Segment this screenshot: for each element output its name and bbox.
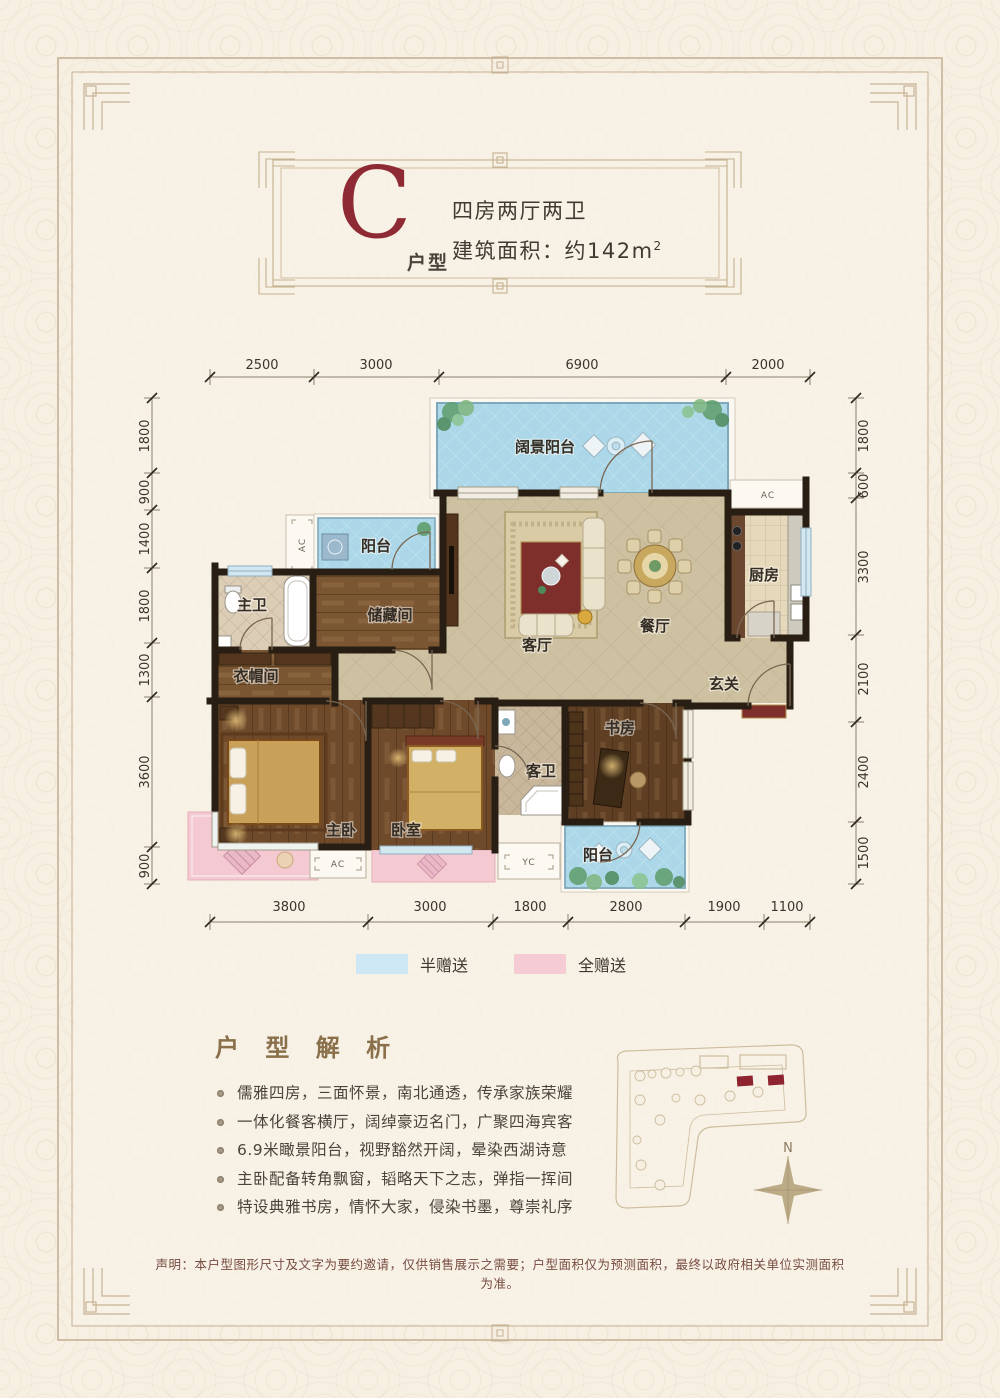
svg-text:900: 900 (138, 854, 153, 879)
room-kitchen: AC 厨房 (728, 480, 806, 638)
legend-label-half-gift: 半赠送 (420, 952, 468, 976)
svg-text:6900: 6900 (565, 358, 598, 373)
unit-analysis: 户 型 解 析 儒雅四房，三面怀景，南北通透，传承家族荣耀 一体化餐客横厅，阔绰… (215, 1028, 635, 1222)
living-sofa-set (505, 512, 605, 638)
svg-text:厨房: 厨房 (749, 566, 779, 584)
bedroom-bed (406, 736, 484, 830)
compass: N (754, 1141, 822, 1224)
analysis-bullet: 主卧配备转角飘窗，韬略天下之志，弹指一挥间 (215, 1165, 635, 1194)
site-highlighted-buildings (737, 1074, 785, 1086)
bookshelf (569, 712, 583, 806)
analysis-list: 儒雅四房，三面怀景，南北通透，传承家族荣耀 一体化餐客横厅，阔绰豪迈名门，广聚四… (215, 1079, 635, 1222)
room-bedroom: 卧室 (368, 700, 495, 850)
svg-text:3600: 3600 (138, 755, 153, 788)
room-balcony-bottom: 阳台 (561, 822, 689, 892)
analysis-heading: 户 型 解 析 (215, 1028, 635, 1063)
floor-lamp (578, 610, 592, 624)
floor-plan: 2500 3000 6900 2000 3800 3000 1800 2800 … (130, 340, 890, 944)
svg-text:3000: 3000 (413, 900, 446, 915)
analysis-bullet: 一体化餐客横厅，阔绰豪迈名门，广聚四海宾客 (215, 1108, 635, 1137)
svg-text:3300: 3300 (857, 550, 872, 583)
legend-item-full-gift: 全赠送 (514, 952, 626, 976)
svg-text:AC: AC (331, 860, 345, 870)
room-storage: 储藏间 (313, 572, 443, 650)
room-balcony-top: AC 阳台 (286, 514, 439, 575)
svg-text:1300: 1300 (138, 653, 153, 686)
unit-letter: C (337, 154, 412, 254)
svg-text:1800: 1800 (138, 419, 153, 452)
room-master-bedroom: 主卧 (215, 700, 368, 847)
legend-swatch-half-gift (356, 954, 408, 974)
area-superscript: 2 (654, 239, 663, 253)
svg-text:YC: YC (521, 858, 535, 868)
unit-area-line: 建筑面积：约142m2 (452, 229, 663, 269)
room-guest-bath: 客卫 (495, 703, 565, 815)
svg-text:AC: AC (761, 491, 775, 501)
washing-machine (322, 534, 348, 560)
ac-platform-bottom: AC (310, 848, 366, 878)
room-study: 书房 (565, 703, 688, 822)
analysis-bullet: 儒雅四房，三面怀景，南北通透，传承家族荣耀 (215, 1079, 635, 1108)
svg-text:900: 900 (138, 480, 153, 505)
svg-text:主卫: 主卫 (237, 596, 267, 614)
svg-text:阳台: 阳台 (361, 537, 391, 555)
svg-text:600: 600 (857, 474, 872, 499)
master-bed (222, 734, 326, 830)
svg-text:客厅: 客厅 (521, 636, 552, 654)
legend-label-full-gift: 全赠送 (578, 952, 626, 976)
title-block: C 户型 四房两厅两卫 建筑面积：约142m2 (255, 148, 745, 298)
svg-text:1500: 1500 (857, 836, 872, 869)
wardrobe (219, 653, 271, 665)
svg-text:衣帽间: 衣帽间 (233, 667, 278, 685)
svg-text:书房: 书房 (605, 719, 635, 737)
svg-text:卧室: 卧室 (391, 821, 421, 839)
pouf-glyph (277, 852, 293, 868)
svg-text:玄关: 玄关 (709, 675, 739, 693)
svg-text:2000: 2000 (751, 358, 784, 373)
svg-text:1800: 1800 (857, 419, 872, 452)
svg-text:1800: 1800 (513, 900, 546, 915)
svg-text:1100: 1100 (770, 900, 803, 915)
yc-platform-bottom: YC (498, 843, 560, 879)
svg-text:1400: 1400 (138, 522, 153, 555)
floorplan-poster: C 户型 四房两厅两卫 建筑面积：约142m2 (0, 0, 1000, 1398)
svg-text:2500: 2500 (245, 358, 278, 373)
svg-text:1900: 1900 (707, 900, 740, 915)
unit-specs: 四房两厅两卫 建筑面积：约142m2 (452, 194, 663, 269)
unit-letter-suffix: 户型 (407, 248, 449, 275)
svg-text:2800: 2800 (609, 900, 642, 915)
svg-text:客卫: 客卫 (525, 762, 556, 780)
site-plan: N (595, 1032, 865, 1232)
compass-north-label: N (783, 1141, 793, 1156)
unit-rooms-line: 四房两厅两卫 (452, 194, 663, 229)
analysis-bullet: 6.9米瞰景阳台，视野豁然开阔，晕染西湖诗意 (215, 1136, 635, 1165)
svg-text:主卧: 主卧 (326, 821, 356, 839)
analysis-bullet: 特设典雅书房，情怀大家，侵染书墨，尊崇礼序 (215, 1193, 635, 1222)
desk-chair (630, 772, 646, 788)
room-view-balcony: 阔景阳台 (430, 398, 735, 498)
toilet-guest (499, 755, 515, 777)
svg-text:2100: 2100 (857, 662, 872, 695)
svg-text:3000: 3000 (359, 358, 392, 373)
legend: 半赠送 全赠送 (356, 952, 626, 976)
disclaimer-text: 声明：本户型图形尺寸及文字为要约邀请，仅供销售展示之需要；户型面积仅为预测面积，… (150, 1254, 850, 1292)
svg-text:2400: 2400 (857, 755, 872, 788)
svg-text:1800: 1800 (138, 589, 153, 622)
room-cloakroom: 衣帽间 (215, 650, 335, 700)
legend-item-half-gift: 半赠送 (356, 952, 468, 976)
dining-table-set (618, 530, 691, 603)
room-master-bath: 主卫 (215, 572, 313, 650)
legend-swatch-full-gift (514, 954, 566, 974)
svg-text:阔景阳台: 阔景阳台 (515, 438, 575, 456)
svg-text:储藏间: 储藏间 (367, 606, 412, 624)
wardrobe-bedroom (372, 704, 434, 728)
svg-text:AC: AC (298, 538, 308, 552)
svg-text:餐厅: 餐厅 (640, 617, 670, 635)
svg-text:3800: 3800 (272, 900, 305, 915)
